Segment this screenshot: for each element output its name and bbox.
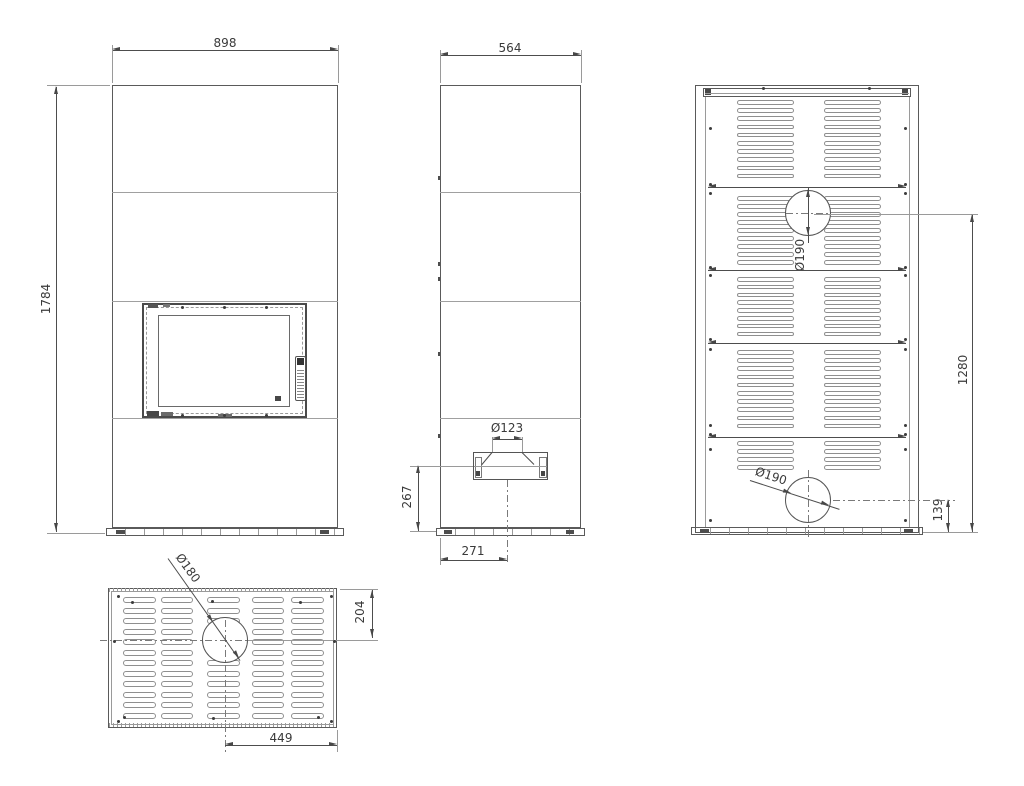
arrowhead	[492, 436, 500, 440]
screw-dot	[904, 266, 907, 269]
arrowhead	[514, 436, 522, 440]
vent-slot	[824, 204, 881, 209]
vent-slot	[737, 358, 794, 363]
vent-slot	[824, 133, 881, 138]
dim-line	[833, 500, 955, 501]
front-panel-joint	[112, 418, 338, 419]
dim-line	[410, 531, 436, 532]
vent-slot	[291, 597, 324, 603]
vent-slot	[123, 671, 156, 677]
vent-slot	[737, 407, 794, 412]
rail-cap	[705, 89, 711, 95]
vent-slot	[123, 702, 156, 708]
door-hinge-strip	[297, 368, 304, 398]
side-plinth	[436, 528, 585, 536]
vent-slot	[824, 375, 881, 380]
screw-dot	[904, 127, 907, 130]
screw-dot	[212, 717, 215, 720]
screw-dot	[904, 448, 907, 451]
vent-slot	[824, 157, 881, 162]
screw-dot	[709, 274, 712, 277]
intake-detail	[476, 471, 480, 476]
screw-dot	[904, 433, 907, 436]
vent-slot	[737, 457, 794, 462]
vent-slot	[824, 383, 881, 388]
arrowhead	[440, 52, 448, 56]
vent-slot	[737, 133, 794, 138]
vent-slot	[291, 629, 324, 635]
screw-dot	[123, 716, 126, 719]
front-panel-joint	[112, 192, 338, 193]
arrowhead	[970, 214, 974, 222]
front-plinth	[106, 528, 344, 536]
vent-slot	[824, 196, 881, 201]
vent-slot	[824, 166, 881, 171]
vent-slot	[737, 174, 794, 179]
vent-slot	[207, 692, 240, 698]
vent-slot	[737, 300, 794, 305]
vent-slot	[737, 383, 794, 388]
vent-slot	[252, 618, 284, 624]
dim-line	[522, 437, 523, 452]
screw-dot	[223, 414, 226, 417]
screw-dot	[709, 192, 712, 195]
vent-slot	[737, 100, 794, 105]
vent-slot	[737, 285, 794, 290]
vent-slot	[252, 671, 284, 677]
vent-slot	[824, 424, 881, 429]
vent-slot	[824, 228, 881, 233]
side-panel-joint	[440, 301, 581, 302]
vent-slot	[161, 629, 193, 635]
plinth-detail	[320, 530, 329, 534]
vent-slot	[123, 692, 156, 698]
vent-slot	[737, 125, 794, 130]
vent-slot	[737, 108, 794, 113]
arrowhead	[54, 523, 58, 531]
arrowhead	[225, 742, 233, 746]
arrowhead	[112, 47, 120, 51]
screw-dot	[181, 306, 184, 309]
arrowhead	[370, 629, 374, 637]
vent-slot	[291, 618, 324, 624]
vent-slot	[252, 629, 284, 635]
vent-slot	[252, 692, 284, 698]
vent-slot	[291, 650, 324, 656]
vent-slot	[737, 308, 794, 313]
vent-slot	[824, 358, 881, 363]
arrowhead	[946, 499, 950, 507]
dim-flue-height: 1280	[956, 345, 970, 395]
screw-dot	[317, 716, 320, 719]
vent-slot	[824, 441, 881, 446]
dim-line	[440, 55, 581, 56]
vent-slot	[824, 236, 881, 241]
vent-slot	[737, 399, 794, 404]
vent-slot	[737, 449, 794, 454]
screw-dot	[709, 519, 712, 522]
screw-dot	[117, 595, 120, 598]
edge-tick	[438, 262, 440, 266]
screw-dot	[330, 720, 333, 723]
top-edge-detail	[109, 588, 336, 592]
vent-slot	[291, 671, 324, 677]
back-view-outline	[695, 85, 919, 533]
vent-slot	[737, 141, 794, 146]
vent-slot	[824, 350, 881, 355]
dim-line	[814, 214, 978, 215]
vent-slot	[824, 449, 881, 454]
arrowhead	[573, 52, 581, 56]
dim-front-width: 898	[200, 36, 250, 50]
dim-line	[338, 45, 339, 83]
vent-slot	[737, 116, 794, 121]
vent-slot	[737, 350, 794, 355]
screw-dot	[904, 519, 907, 522]
vent-slot	[161, 660, 193, 666]
vent-slot	[824, 416, 881, 421]
screw-dot	[904, 338, 907, 341]
vent-slot	[291, 608, 324, 614]
side-panel-joint	[440, 418, 581, 419]
screw-dot	[211, 600, 214, 603]
dim-intake-height: 267	[400, 472, 414, 522]
dim-line	[474, 466, 547, 467]
edge-tick	[438, 352, 440, 356]
vent-slot	[161, 650, 193, 656]
dim-line	[507, 480, 508, 564]
dim-line	[581, 50, 582, 83]
dim-front-height: 1784	[39, 274, 53, 324]
vent-slot	[737, 366, 794, 371]
arrowhead	[806, 227, 810, 235]
arrowhead	[946, 523, 950, 531]
vent-slot	[737, 293, 794, 298]
intake-detail	[541, 471, 545, 476]
vent-slot	[737, 277, 794, 282]
vent-slot	[824, 125, 881, 130]
vent-slot	[737, 196, 794, 201]
vent-slot	[252, 608, 284, 614]
screw-dot	[265, 306, 268, 309]
vent-slot	[123, 713, 156, 719]
vent-slot	[161, 608, 193, 614]
dim-line	[708, 437, 906, 438]
dim-flue-diameter: Ø190	[793, 230, 807, 280]
vent-slot	[824, 457, 881, 462]
screw-dot	[868, 87, 871, 90]
screw-dot	[709, 348, 712, 351]
rail-cap	[902, 89, 908, 95]
technical-drawing: 898 1784 564 Ø123 267 271 Ø190 1280 Ø190…	[0, 0, 1024, 786]
vent-slot	[207, 608, 240, 614]
vent-slot	[252, 597, 284, 603]
arrowhead	[970, 523, 974, 531]
vent-slot	[737, 149, 794, 154]
dim-intake-offset: 271	[448, 544, 498, 558]
dim-line	[337, 730, 338, 752]
vent-slot	[824, 285, 881, 290]
plinth-detail	[116, 530, 125, 534]
arrowhead	[370, 590, 374, 598]
vent-slot	[824, 308, 881, 313]
vent-slot	[252, 713, 284, 719]
vent-slot	[123, 681, 156, 687]
vent-slot	[161, 618, 193, 624]
screw-dot	[709, 183, 712, 186]
plinth-detail	[904, 529, 913, 533]
dim-line	[708, 187, 906, 188]
vent-slot	[824, 100, 881, 105]
arrowhead	[806, 189, 810, 197]
arrowhead	[440, 557, 448, 561]
vent-slot	[737, 416, 794, 421]
vent-slot	[824, 252, 881, 257]
vent-slot	[161, 713, 193, 719]
vent-slot	[123, 660, 156, 666]
vent-slot	[737, 244, 794, 249]
screw-dot	[131, 601, 134, 604]
vent-slot	[737, 260, 794, 265]
vent-slot	[161, 671, 193, 677]
vent-slot	[207, 702, 240, 708]
dim-line	[972, 215, 973, 532]
vent-slot	[123, 597, 156, 603]
screw-dot	[904, 192, 907, 195]
vent-slot	[207, 681, 240, 687]
vent-slot	[291, 702, 324, 708]
dim-line	[440, 560, 507, 561]
vent-slot	[824, 399, 881, 404]
dim-top-offset-y: 204	[353, 587, 367, 637]
vent-slot	[824, 407, 881, 412]
vent-slot	[824, 220, 881, 225]
screw-dot	[223, 306, 226, 309]
screw-dot	[709, 424, 712, 427]
dim-line	[708, 270, 906, 271]
dim-line	[705, 93, 909, 94]
dim-line	[225, 745, 337, 746]
edge-tick	[438, 277, 440, 281]
screw-dot	[709, 266, 712, 269]
vent-slot	[123, 650, 156, 656]
door-detail	[163, 304, 170, 307]
dim-line	[56, 87, 57, 532]
screw-dot	[904, 348, 907, 351]
vent-slot	[737, 166, 794, 171]
screw-dot	[299, 601, 302, 604]
vent-slot	[737, 324, 794, 329]
arrowhead	[54, 86, 58, 94]
vent-slot	[824, 149, 881, 154]
vent-slot	[737, 332, 794, 337]
vent-slot	[252, 702, 284, 708]
screw-dot	[117, 720, 120, 723]
vent-slot	[737, 391, 794, 396]
plinth-detail	[566, 530, 574, 534]
vent-slot	[824, 174, 881, 179]
vent-slot	[737, 424, 794, 429]
arrowhead	[416, 465, 420, 473]
screw-dot	[904, 424, 907, 427]
door-detail	[147, 411, 159, 416]
dim-line	[248, 640, 378, 641]
vent-slot	[252, 681, 284, 687]
vent-slot	[161, 681, 193, 687]
dim-intake-diameter: Ø123	[482, 421, 532, 435]
dim-outlet-height: 139	[931, 485, 945, 535]
screw-dot	[709, 338, 712, 341]
vent-slot	[824, 277, 881, 282]
screw-dot	[762, 87, 765, 90]
back-plinth	[691, 527, 923, 535]
vent-slot	[824, 244, 881, 249]
screw-dot	[113, 640, 116, 643]
vent-slot	[824, 391, 881, 396]
screw-dot	[904, 183, 907, 186]
vent-slot	[824, 141, 881, 146]
vent-slot	[824, 293, 881, 298]
dim-line	[47, 533, 105, 534]
vent-slot	[824, 465, 881, 470]
vent-slot	[824, 116, 881, 121]
vent-slot	[123, 618, 156, 624]
edge-tick	[438, 176, 440, 180]
vent-slot	[737, 316, 794, 321]
vent-slot	[737, 236, 794, 241]
screw-dot	[709, 127, 712, 130]
vent-slot	[824, 260, 881, 265]
arrowhead	[329, 742, 337, 746]
arrowhead	[330, 47, 338, 51]
arrowhead	[416, 522, 420, 530]
vent-slot	[737, 228, 794, 233]
dim-line	[112, 50, 338, 51]
vent-slot	[824, 324, 881, 329]
vent-slot	[161, 702, 193, 708]
dim-line	[705, 97, 706, 527]
front-panel-joint	[112, 301, 338, 302]
vent-slot	[161, 597, 193, 603]
vent-slot	[824, 332, 881, 337]
vent-slot	[737, 375, 794, 380]
arrowhead	[499, 557, 507, 561]
dim-line	[708, 343, 906, 344]
screw-dot	[265, 414, 268, 417]
vent-slot	[824, 316, 881, 321]
vent-slot	[737, 157, 794, 162]
vent-slot	[824, 108, 881, 113]
edge-tick	[438, 434, 440, 438]
vent-slot	[824, 366, 881, 371]
vent-slot	[123, 608, 156, 614]
vent-slot	[291, 660, 324, 666]
top-edge-detail	[109, 723, 336, 727]
screw-dot	[333, 640, 336, 643]
vent-slot	[161, 692, 193, 698]
side-panel-joint	[440, 192, 581, 193]
screw-dot	[709, 448, 712, 451]
door-detail	[148, 304, 158, 308]
vent-slot	[252, 650, 284, 656]
screw-dot	[181, 414, 184, 417]
vent-slot	[291, 692, 324, 698]
vent-slot	[123, 629, 156, 635]
screw-dot	[904, 274, 907, 277]
vent-slot	[737, 252, 794, 257]
door-detail	[161, 412, 173, 416]
dim-line	[909, 97, 910, 527]
door-latch-cap	[297, 358, 304, 365]
dim-side-depth: 564	[485, 41, 535, 55]
vent-slot	[824, 300, 881, 305]
vent-slot	[207, 671, 240, 677]
vent-slot	[737, 441, 794, 446]
dim-line	[923, 532, 978, 533]
dim-top-offset-x: 449	[256, 731, 306, 745]
screw-dot	[709, 433, 712, 436]
plinth-detail	[700, 529, 709, 533]
plinth-detail	[444, 530, 452, 534]
screw-dot	[330, 595, 333, 598]
vent-slot	[252, 660, 284, 666]
dim-line	[808, 470, 809, 540]
brand-mark	[275, 396, 281, 401]
fire-door-glass	[158, 315, 290, 407]
vent-slot	[291, 681, 324, 687]
